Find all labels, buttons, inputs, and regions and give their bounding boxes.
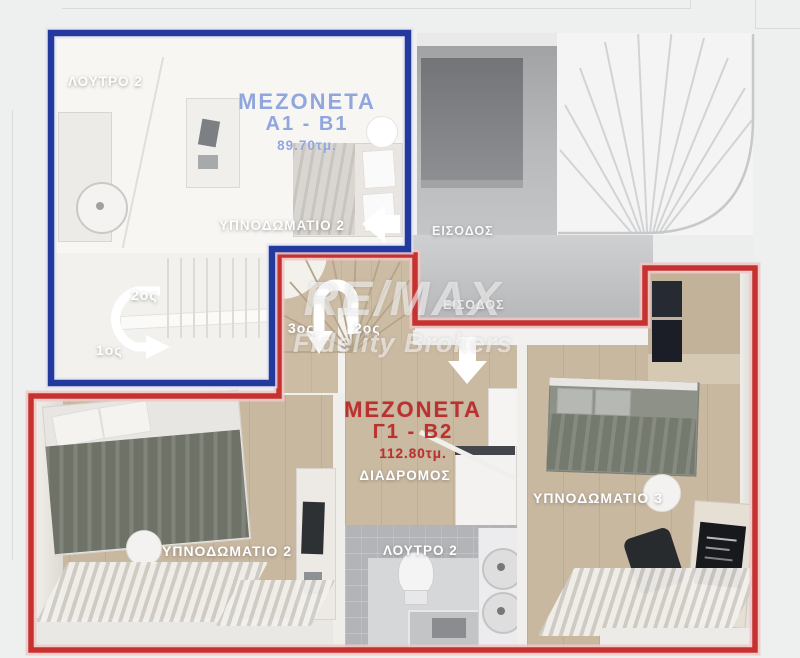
building-outline-line — [755, 0, 756, 28]
entrance-label-upper: ΕΙΣΟΔΟΣ — [432, 224, 494, 238]
wardrobe-item — [652, 281, 682, 317]
pillow — [594, 389, 631, 416]
watermark-subtitle: Fidelity Brokers — [293, 330, 513, 357]
unit-a1b1-code: A1 - B1 — [238, 114, 376, 136]
unit-a1b1-title: ΜΕΖΟΝΕΤΑ A1 - B1 89.70τμ. — [238, 90, 376, 154]
pillow — [362, 192, 397, 232]
desk-item — [198, 155, 218, 169]
unit-g1b2-area: 112.80τμ. — [344, 447, 482, 462]
floor-label-2os-blue: 2ος — [131, 287, 158, 303]
toilet-cistern — [404, 590, 428, 605]
building-outline-line — [12, 110, 13, 560]
remax-watermark: RE/MAX Fidelity Brokers — [293, 276, 513, 357]
stool — [126, 530, 162, 566]
vestibule-wall-left — [409, 33, 417, 255]
sink-drain — [497, 607, 505, 615]
bed-blanket — [546, 413, 696, 474]
wardrobe-item — [652, 320, 682, 362]
floor-plan: ΛΟΥΤΡΟ 2 ΜΕΖΟΝΕΤΑ A1 - B1 89.70τμ. ΥΠΝΟΔ… — [0, 0, 800, 658]
building-outline-line — [755, 28, 800, 29]
room-label-bathroom-g1b2: ΛΟΥΤΡΟ 2 — [383, 543, 458, 558]
bed — [546, 377, 697, 474]
unit-g1b2-code: Γ1 - Β2 — [344, 422, 482, 444]
vestibule-inner-wall — [421, 58, 523, 180]
vestibule-wall-top — [409, 33, 557, 46]
pillow — [362, 149, 397, 189]
window-sill — [600, 628, 753, 650]
shower-drain — [432, 618, 466, 638]
unit-a1b1-name: ΜΕΖΟΝΕΤΑ — [238, 90, 376, 114]
unit-g1b2-name: ΜΕΖΟΝΕΤΑ — [344, 398, 482, 422]
pillow — [556, 388, 593, 415]
vestibule-ledge — [421, 180, 523, 188]
unit-a1b1-area: 89.70τμ. — [238, 139, 376, 154]
communal-stairwell — [557, 33, 753, 235]
room-label-hallway-g1b2: ΔΙΑΔΡΟΜΟΣ — [359, 468, 450, 483]
room-label-bedroom2-g1b2: ΥΠΝΟΔΩΜΑΤΙΟ 2 — [162, 543, 292, 559]
sink-drain — [497, 563, 505, 571]
room-label-bedroom2-a1b1: ΥΠΝΟΔΩΜΑΤΙΟ 2 — [219, 218, 345, 233]
curtain — [538, 568, 764, 636]
tv — [301, 502, 325, 555]
stair-landing — [653, 235, 753, 268]
room-label-bedroom3-g1b2: ΥΠΝΟΔΩΜΑΤΙΟ 3 — [533, 490, 663, 506]
sink-drain — [96, 202, 104, 210]
wall-band — [517, 345, 527, 650]
building-outline-line — [62, 8, 690, 9]
floor-label-1os-blue: 1ος — [96, 342, 123, 358]
building-outline-line — [690, 0, 691, 9]
room-label-bathroom-a1b1: ΛΟΥΤΡΟ 2 — [68, 74, 143, 89]
watermark-brand: RE/MAX — [293, 276, 513, 324]
unit-g1b2-title: ΜΕΖΟΝΕΤΑ Γ1 - Β2 112.80τμ. — [344, 398, 482, 462]
